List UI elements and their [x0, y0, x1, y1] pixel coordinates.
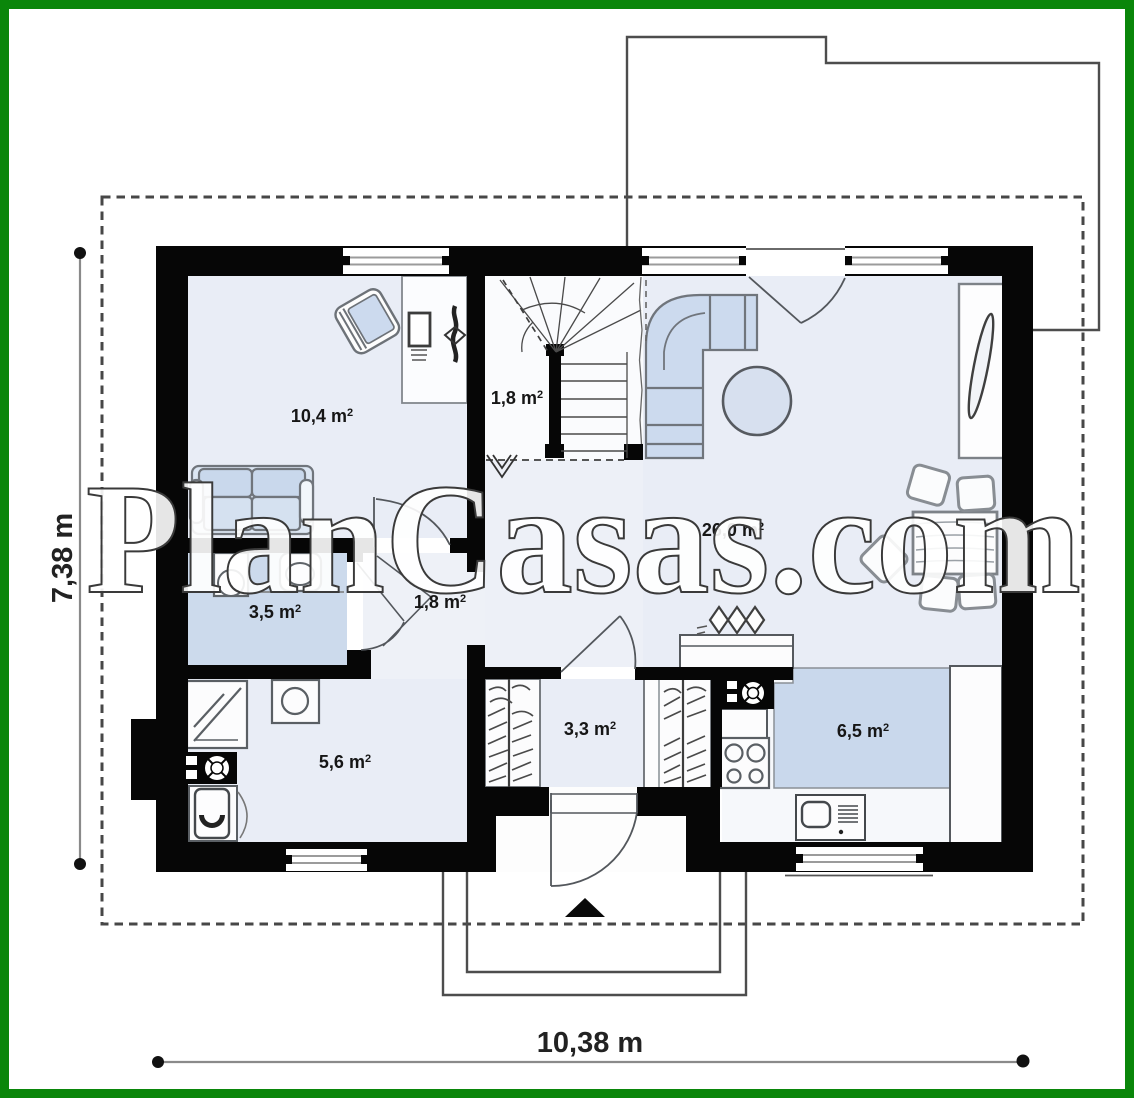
svg-text:7,38 m: 7,38 m: [47, 513, 79, 603]
svg-text:10,4 m2: 10,4 m2: [291, 406, 353, 426]
svg-text:PlanCasas.com: PlanCasas.com: [86, 452, 1081, 627]
svg-text:10,38 m: 10,38 m: [537, 1027, 643, 1059]
svg-text:5,6 m2: 5,6 m2: [319, 752, 371, 772]
svg-text:6,5 m2: 6,5 m2: [837, 721, 889, 741]
svg-text:3,3 m2: 3,3 m2: [564, 719, 616, 739]
svg-text:1,8 m2: 1,8 m2: [491, 388, 543, 408]
